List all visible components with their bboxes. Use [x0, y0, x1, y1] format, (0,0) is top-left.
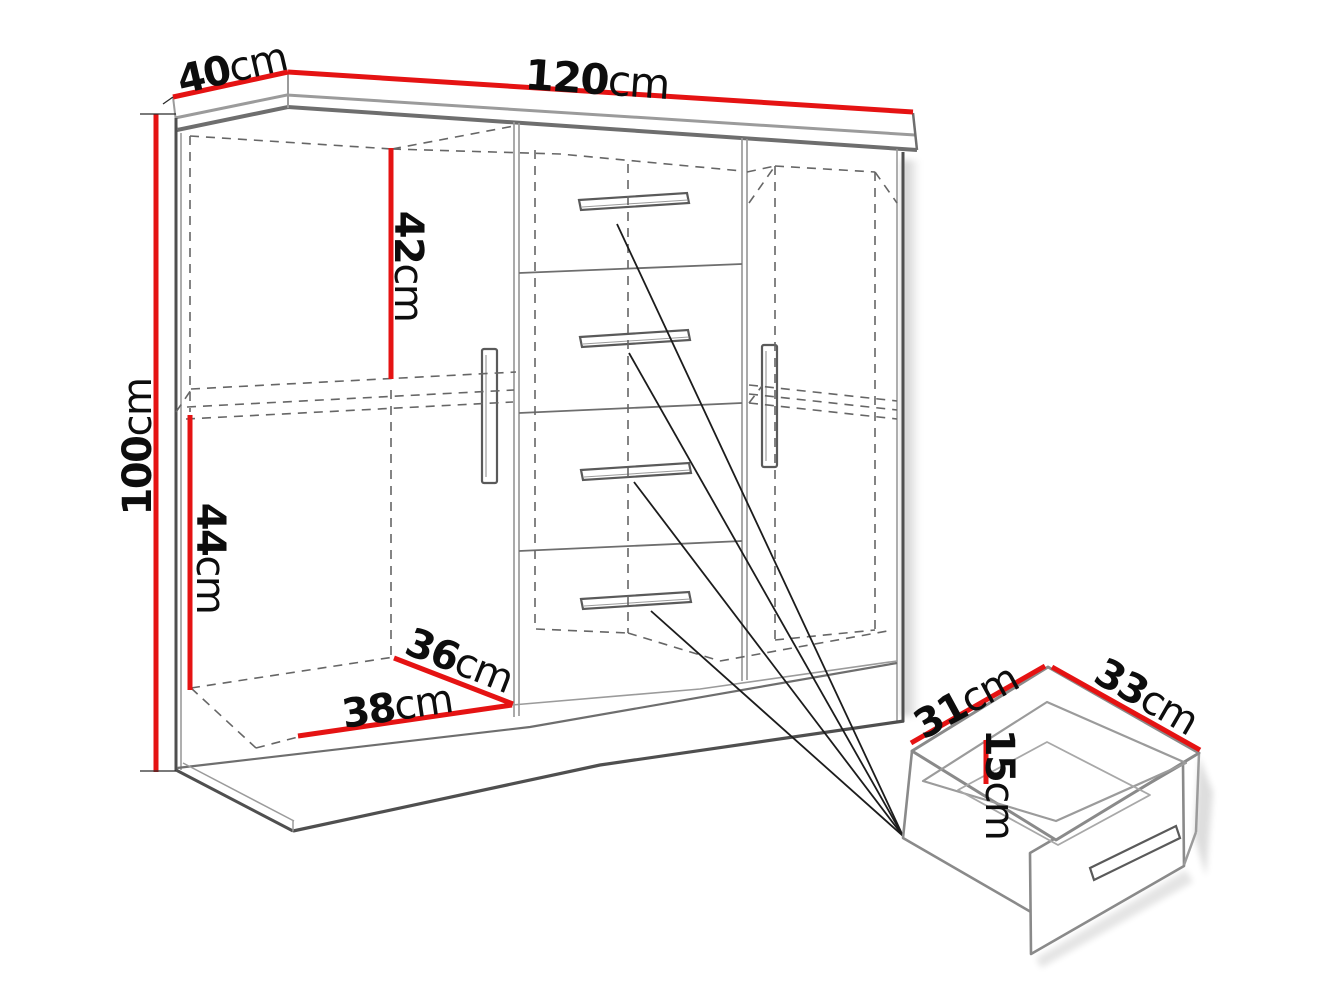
top-board-right-corner [913, 113, 917, 150]
label-upper-42cm-value: 42 [385, 211, 431, 264]
label-width-120cm-unit: cm [606, 55, 670, 108]
label-depth-40cm: 40cm [173, 34, 291, 104]
right-ceiling-diagonal-right [875, 172, 897, 203]
carcass-bottom-edge [177, 663, 897, 768]
left-floor-side-edge [191, 688, 256, 748]
pointer-line-4 [651, 611, 903, 836]
floor-diagonal-left [628, 633, 720, 661]
left-foot-inner [183, 763, 294, 821]
left-shelf-back-edge [191, 372, 516, 389]
drawer-back-right-bottom [1184, 832, 1196, 865]
drawer-separator-2 [519, 403, 742, 413]
left-door-handle [482, 349, 497, 483]
right-ceiling-back-edge [775, 166, 875, 172]
label-height-100cm: 100cm [115, 379, 161, 516]
label-lower-44cm-value: 44 [187, 503, 233, 556]
label-width-120cm: 120cm [523, 50, 670, 109]
label-drawer-15cm: 15cm [976, 729, 1022, 840]
label-upper-42cm: 42cm [385, 211, 431, 322]
pointer-line-3 [634, 482, 903, 836]
label-drawer-15cm-unit: cm [976, 781, 1022, 839]
top-board-inner-edge [175, 95, 915, 135]
label-lower-44cm-unit: cm [187, 555, 233, 613]
partitions [514, 122, 747, 717]
left-shelf-side-edge [176, 390, 191, 412]
drawer-separator-1 [519, 264, 742, 273]
label-height-100cm-value: 100 [115, 436, 161, 515]
left-floor-front-edge [256, 737, 298, 748]
label-width-38cm-unit: cm [391, 676, 455, 730]
label-width-38cm-value: 38 [339, 685, 398, 738]
hidden-edges [176, 126, 897, 748]
floor-diagonal-right [720, 630, 893, 661]
hidden-ceiling-back-mid [392, 149, 742, 171]
drawer-separator-3 [519, 541, 742, 551]
drawer-column [519, 193, 742, 609]
plinth-bottom-edge [293, 721, 904, 831]
left-floor-back-edge [191, 657, 394, 688]
pointer-line-1 [617, 224, 903, 836]
doors [482, 345, 777, 483]
label-depth-40cm-unit: cm [224, 34, 291, 92]
label-height-100cm-unit: cm [115, 379, 161, 437]
hidden-ceiling-diagonal [392, 126, 514, 149]
cabinet-body [176, 118, 904, 831]
drawer-pointer-lines [617, 224, 903, 836]
label-width-120cm-value: 120 [523, 50, 610, 105]
hidden-ceiling-back-left [190, 136, 392, 149]
label-drawer-15cm-value: 15 [976, 729, 1022, 782]
label-lower-44cm: 44cm [187, 503, 233, 614]
diagram-canvas: 40cm 120cm 100cm 42cm 44cm 36cm 38cm 31c… [0, 0, 1334, 1000]
label-upper-42cm-unit: cm [385, 263, 431, 321]
cabinet-drop-shadow [902, 160, 920, 716]
left-foot-outer [176, 770, 293, 831]
label-width-38cm: 38cm [339, 676, 455, 738]
furniture-dimension-diagram: 40cm 120cm 100cm 42cm 44cm 36cm 38cm 31c… [0, 0, 1334, 1000]
column-floor-edge [536, 629, 628, 633]
tick-corner [163, 97, 173, 104]
